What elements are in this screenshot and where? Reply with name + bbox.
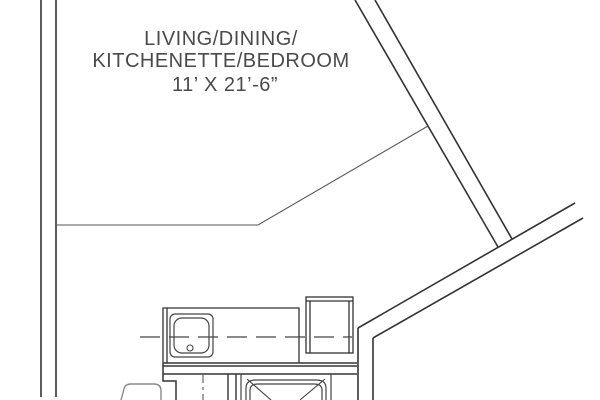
room-dimensions-label: 11’ X 21’-6” (172, 74, 278, 96)
refrigerator-cabinet (306, 297, 353, 353)
vanity-sink (121, 384, 161, 400)
entry-diagonal-wall (358, 203, 583, 338)
kitchenette-counter (163, 308, 299, 363)
room-label-line1: LIVING/DINING/ (144, 28, 298, 50)
bathroom-wall (163, 363, 357, 400)
floor-plan-drawing: LIVING/DINING/ KITCHENETTE/BEDROOM 11’ X… (0, 0, 600, 400)
right-lower-wall (358, 328, 373, 400)
room-label: LIVING/DINING/ KITCHENETTE/BEDROOM 11’ X… (92, 28, 349, 96)
room-label-line2: KITCHENETTE/BEDROOM (92, 50, 349, 72)
bathroom-partition-wall (228, 374, 236, 400)
floor-plan-canvas: LIVING/DINING/ KITCHENETTE/BEDROOM 11’ X… (0, 0, 600, 400)
left-wall (41, 0, 56, 397)
top-diagonal-wall (355, 0, 512, 247)
room-divider-line (56, 126, 428, 225)
shower-stall (241, 374, 331, 400)
shower-diagonals (247, 379, 325, 400)
sink-drain-icon (187, 345, 193, 351)
